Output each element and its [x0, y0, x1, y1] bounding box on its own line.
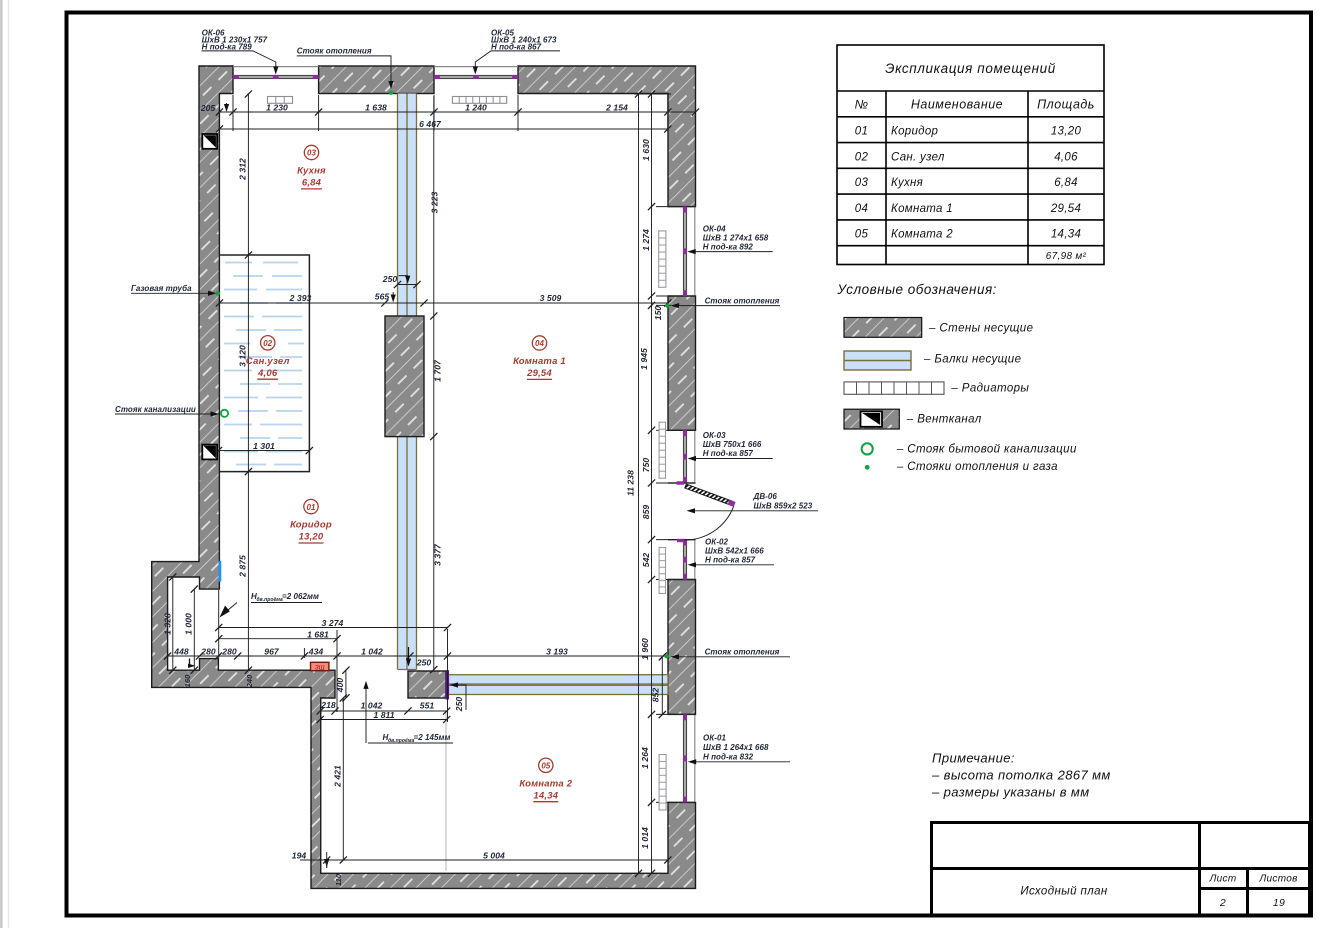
svg-text:1 230: 1 230	[266, 103, 288, 113]
svg-text:5 004: 5 004	[483, 851, 505, 861]
svg-text:Стояк отопления: Стояк отопления	[297, 46, 372, 55]
svg-text:ОК-02: ОК-02	[705, 538, 728, 547]
svg-text:4,06: 4,06	[1054, 151, 1078, 163]
svg-text:Стояк канализации: Стояк канализации	[115, 405, 196, 414]
svg-text:– размеры указаны в мм: – размеры указаны в мм	[931, 785, 1090, 800]
svg-text:Н под-ка 789: Н под-ка 789	[202, 42, 253, 51]
svg-text:Стояк отопления: Стояк отопления	[705, 648, 780, 657]
svg-text:1 328: 1 328	[163, 613, 173, 635]
svg-text:400: 400	[335, 678, 345, 694]
svg-text:6,84: 6,84	[302, 178, 322, 189]
svg-text:14,34: 14,34	[1051, 229, 1081, 241]
svg-text:ШхВ 1 264х1 668: ШхВ 1 264х1 668	[703, 743, 769, 752]
svg-text:Условные обозначения:: Условные обозначения:	[836, 282, 997, 297]
svg-text:160: 160	[183, 674, 192, 687]
svg-text:Стояк отопления: Стояк отопления	[705, 297, 780, 306]
svg-text:– Стояки отопления и газа: – Стояки отопления и газа	[896, 461, 1058, 473]
svg-text:967: 967	[264, 647, 280, 657]
svg-text:448: 448	[173, 647, 189, 657]
svg-text:04: 04	[535, 339, 544, 348]
svg-text:11 238: 11 238	[626, 470, 636, 496]
svg-text:4,06: 4,06	[257, 368, 278, 379]
svg-text:Н под-ка 867: Н под-ка 867	[491, 42, 542, 51]
svg-text:3 193: 3 193	[546, 647, 568, 657]
svg-text:19: 19	[1273, 897, 1285, 909]
svg-text:Комната 1: Комната 1	[891, 203, 953, 215]
svg-text:750: 750	[641, 458, 651, 473]
svg-text:ОК-01: ОК-01	[703, 733, 726, 742]
svg-text:1 811: 1 811	[373, 710, 394, 720]
svg-text:– Стояк бытовой канализации: – Стояк бытовой канализации	[896, 444, 1077, 456]
svg-text:=2 062мм: =2 062мм	[282, 592, 319, 601]
svg-text:=2 145мм: =2 145мм	[414, 733, 451, 742]
svg-text:Сан.узел: Сан.узел	[246, 356, 290, 367]
svg-text:110: 110	[334, 873, 343, 886]
svg-text:1 945: 1 945	[639, 348, 649, 370]
svg-text:– Балки несущие: – Балки несущие	[923, 354, 1021, 366]
svg-text:Кухня: Кухня	[297, 166, 326, 177]
svg-text:542: 542	[641, 553, 651, 568]
svg-text:05: 05	[855, 229, 869, 241]
svg-text:ШхВ 750х1 666: ШхВ 750х1 666	[703, 440, 762, 449]
svg-text:Листов: Листов	[1258, 874, 1297, 885]
svg-text:04: 04	[855, 203, 868, 215]
svg-text:Газовая труба: Газовая труба	[131, 284, 192, 293]
svg-text:551: 551	[420, 701, 435, 711]
svg-text:– Радиаторы: – Радиаторы	[950, 383, 1029, 395]
svg-text:859: 859	[641, 505, 651, 520]
svg-text:205: 205	[200, 103, 216, 113]
svg-text:1 960: 1 960	[640, 638, 650, 660]
svg-text:Экспликация помещений: Экспликация помещений	[885, 61, 1056, 76]
svg-text:280: 280	[200, 647, 216, 657]
svg-text:– высота потолка 2867 мм: – высота потолка 2867 мм	[931, 768, 1111, 783]
svg-text:1 301: 1 301	[253, 441, 275, 451]
svg-text:1 638: 1 638	[365, 103, 387, 113]
svg-text:02: 02	[855, 151, 869, 163]
svg-text:6 467: 6 467	[419, 119, 442, 129]
svg-text:ОК-03: ОК-03	[703, 431, 726, 440]
svg-text:2: 2	[1219, 897, 1226, 909]
svg-text:Лист: Лист	[1209, 874, 1237, 885]
svg-text:2 312: 2 312	[238, 158, 248, 181]
svg-text:Кухня: Кухня	[891, 177, 923, 189]
svg-text:29,54: 29,54	[526, 368, 552, 379]
svg-text:3 223: 3 223	[430, 191, 440, 213]
svg-text:1 630: 1 630	[641, 139, 651, 161]
svg-text:ШхВ 542х1 666: ШхВ 542х1 666	[705, 547, 764, 556]
svg-text:Н под-ка 857: Н под-ка 857	[703, 449, 754, 458]
svg-text:218: 218	[320, 700, 336, 710]
svg-text:2 421: 2 421	[333, 765, 343, 788]
svg-text:150: 150	[653, 306, 663, 321]
svg-text:05: 05	[541, 762, 550, 771]
svg-text:– Вентканал: – Вентканал	[906, 414, 982, 426]
svg-text:Коридор: Коридор	[891, 126, 939, 138]
svg-text:240: 240	[245, 674, 254, 688]
svg-text:280: 280	[221, 647, 237, 657]
svg-text:67,98 м²: 67,98 м²	[1046, 251, 1087, 262]
svg-text:250: 250	[416, 658, 432, 668]
svg-text:Коридор: Коридор	[290, 520, 332, 531]
svg-text:13,20: 13,20	[1051, 126, 1082, 138]
svg-text:3 274: 3 274	[322, 618, 344, 628]
svg-text:ЗЩ: ЗЩ	[315, 664, 325, 671]
svg-text:2 875: 2 875	[238, 555, 248, 578]
svg-text:№: №	[854, 98, 868, 112]
svg-text:ШхВ 1 274х1 658: ШхВ 1 274х1 658	[703, 233, 769, 242]
svg-text:Примечание:: Примечание:	[932, 751, 1015, 766]
svg-text:565: 565	[375, 292, 390, 302]
svg-text:ОК-04: ОК-04	[703, 224, 726, 233]
svg-text:1 681: 1 681	[307, 630, 329, 640]
svg-text:3 509: 3 509	[540, 293, 562, 303]
svg-text:Исходный план: Исходный план	[1020, 886, 1107, 898]
svg-text:Сан. узел: Сан. узел	[891, 151, 945, 163]
svg-text:– Стены несущие: – Стены несущие	[928, 323, 1033, 335]
svg-text:2 154: 2 154	[605, 103, 628, 113]
svg-text:2 393: 2 393	[289, 293, 312, 303]
svg-text:Комната 1: Комната 1	[513, 356, 566, 367]
svg-text:Н под-ка 832: Н под-ка 832	[703, 753, 754, 762]
svg-text:29,54: 29,54	[1050, 203, 1081, 215]
svg-text:02: 02	[263, 339, 272, 348]
svg-text:Комната 2: Комната 2	[891, 229, 953, 241]
svg-text:Комната 2: Комната 2	[519, 778, 572, 789]
svg-text:ШхВ 859х2 523: ШхВ 859х2 523	[754, 502, 813, 511]
svg-text:1 707: 1 707	[433, 359, 443, 382]
svg-text:01: 01	[307, 503, 316, 512]
svg-text:Н под-ка 857: Н под-ка 857	[705, 556, 756, 565]
svg-text:Наименование: Наименование	[911, 98, 1003, 112]
svg-text:852: 852	[651, 688, 661, 703]
svg-text:6,84: 6,84	[1054, 177, 1078, 189]
svg-text:1 274: 1 274	[641, 229, 651, 251]
svg-text:1 000: 1 000	[184, 613, 194, 635]
svg-text:03: 03	[855, 177, 869, 189]
svg-text:250: 250	[454, 697, 464, 713]
svg-text:250: 250	[382, 274, 398, 284]
svg-text:1 240: 1 240	[465, 103, 487, 113]
svg-text:194: 194	[292, 851, 307, 861]
svg-text:1 042: 1 042	[361, 647, 383, 657]
svg-text:01: 01	[855, 126, 868, 138]
svg-text:1 264: 1 264	[640, 747, 650, 769]
svg-text:1 042: 1 042	[361, 701, 383, 711]
svg-text:434: 434	[308, 647, 324, 657]
svg-text:Площадь: Площадь	[1037, 98, 1095, 112]
svg-text:Н под-ка 892: Н под-ка 892	[703, 242, 754, 251]
svg-text:1 014: 1 014	[640, 827, 650, 849]
svg-text:03: 03	[307, 149, 316, 158]
svg-text:ДВ-06: ДВ-06	[753, 492, 778, 501]
svg-text:13,20: 13,20	[299, 532, 324, 543]
svg-text:3 377: 3 377	[433, 543, 443, 566]
svg-text:14,34: 14,34	[533, 790, 558, 801]
